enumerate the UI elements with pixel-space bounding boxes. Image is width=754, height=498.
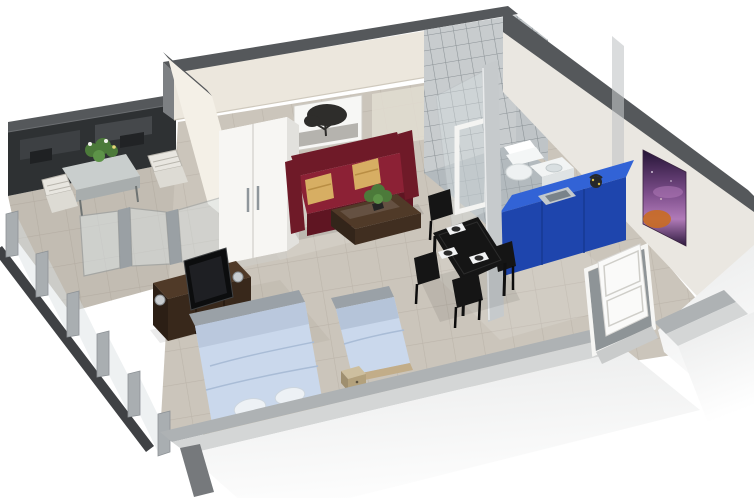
silver-lamp (155, 295, 165, 305)
glass-door-pane (80, 211, 120, 276)
floorplan-canvas (0, 0, 754, 498)
kettle (590, 175, 602, 188)
silver-lamp (233, 272, 243, 282)
floorplan-render (0, 0, 754, 498)
table-leg (504, 263, 505, 296)
wardrobe (219, 117, 299, 272)
glass-door-pane (130, 208, 170, 266)
